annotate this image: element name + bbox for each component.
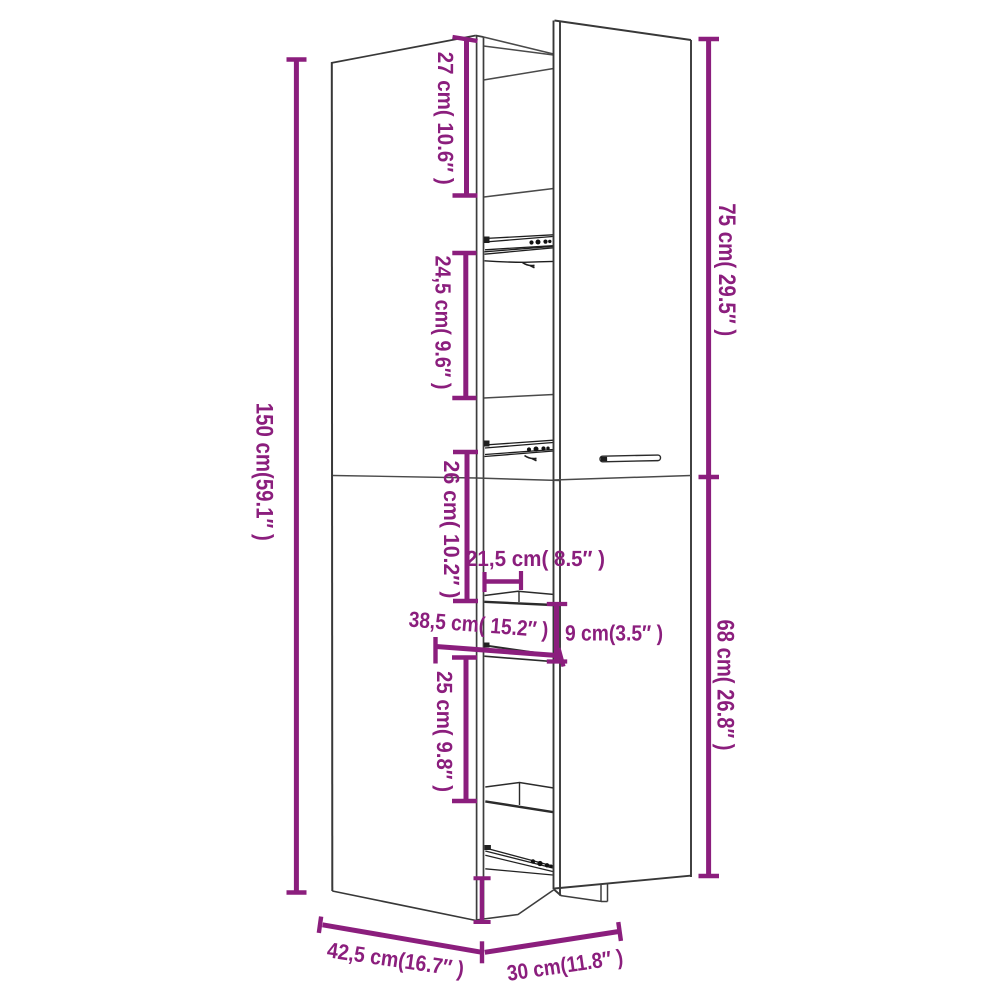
svg-text:21,5 cm( 8.5″ ): 21,5 cm( 8.5″ ) <box>466 546 605 571</box>
svg-text:75 cm( 29.5″ ): 75 cm( 29.5″ ) <box>713 203 740 336</box>
svg-text:150 cm(59.1″ ): 150 cm(59.1″ ) <box>251 403 278 541</box>
svg-text:24,5 cm( 9.6″ ): 24,5 cm( 9.6″ ) <box>431 256 456 390</box>
svg-text:25 cm( 9.8″ ): 25 cm( 9.8″ ) <box>432 671 457 792</box>
svg-text:26 cm( 10.2″ ): 26 cm( 10.2″ ) <box>439 461 464 599</box>
svg-text:27 cm( 10.6″ ): 27 cm( 10.6″ ) <box>433 52 458 185</box>
svg-text:9 cm(3.5″ ): 9 cm(3.5″ ) <box>565 621 663 646</box>
svg-text:68 cm( 26.8″ ): 68 cm( 26.8″ ) <box>712 620 739 751</box>
